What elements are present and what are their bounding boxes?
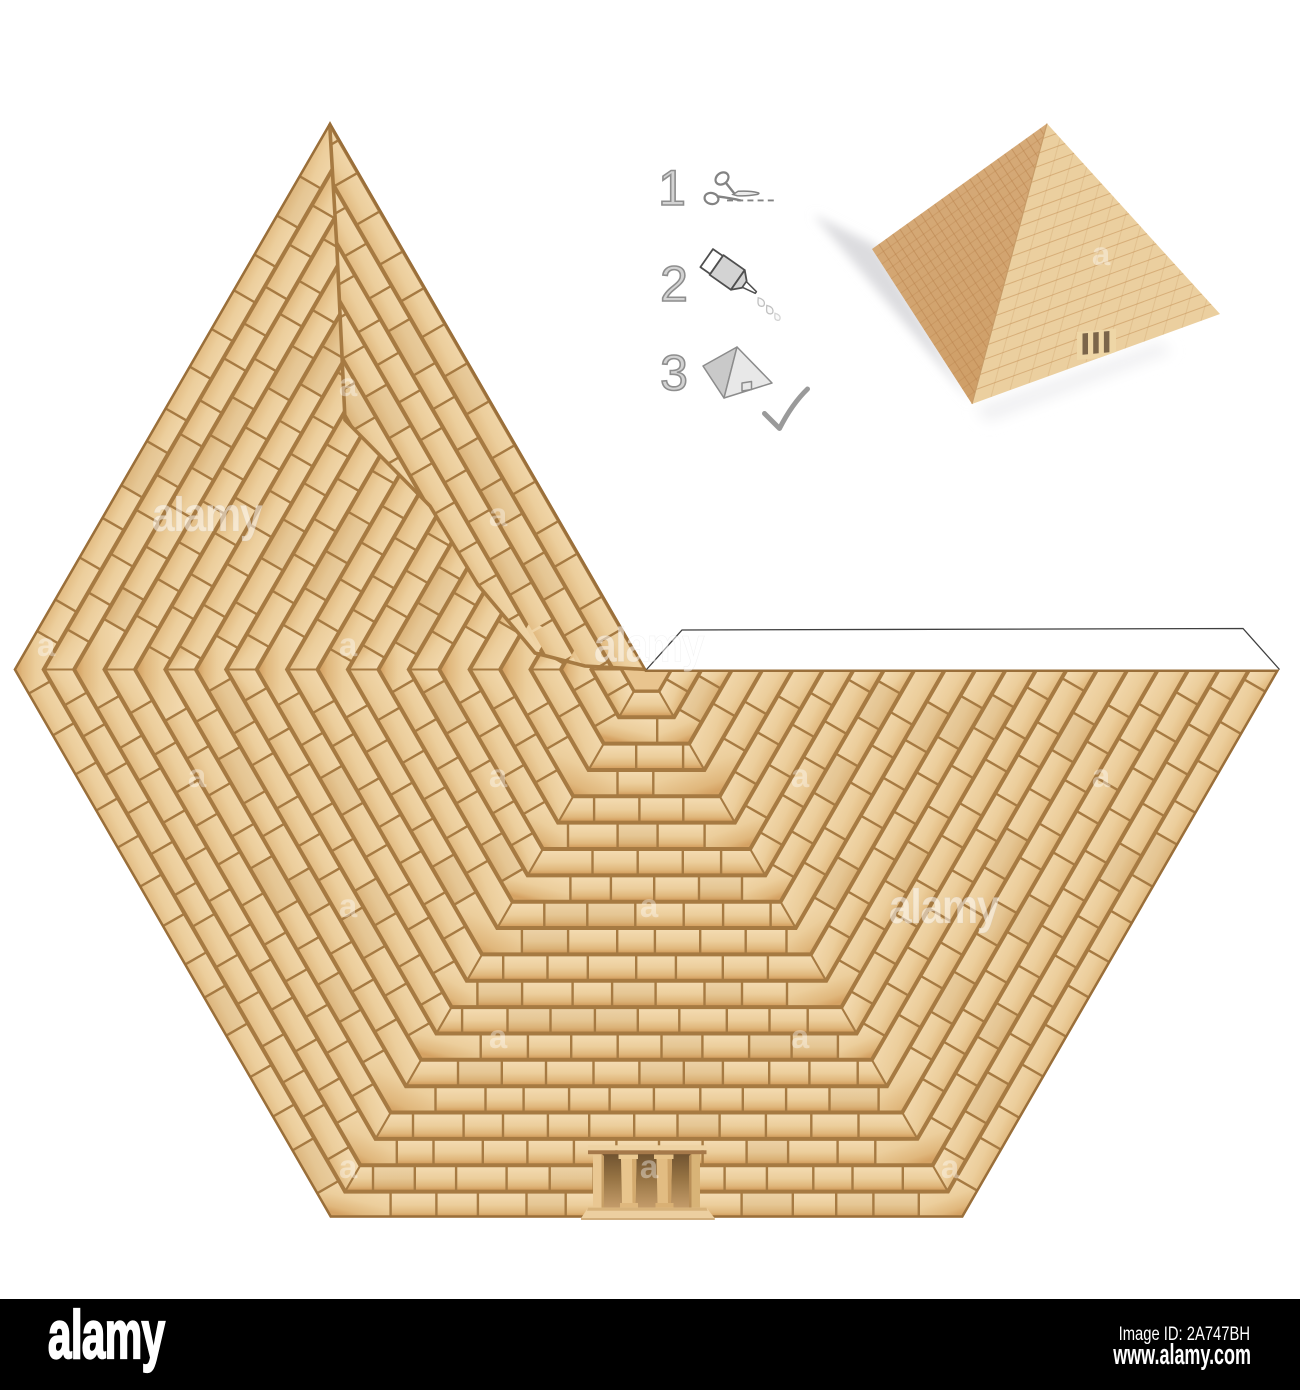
svg-text:a: a [339,1148,358,1185]
svg-text:a: a [1092,235,1111,272]
svg-text:a: a [188,757,207,794]
svg-text:alamy: alamy [152,489,263,542]
svg-text:2: 2 [660,256,688,312]
svg-text:a: a [1092,757,1111,794]
svg-text:3: 3 [660,345,688,401]
svg-text:www.alamy.com: www.alamy.com [1112,1339,1251,1371]
svg-text:a: a [188,1018,207,1055]
svg-text:a: a [339,366,358,403]
svg-text:a: a [37,626,56,663]
svg-text:a: a [791,1018,810,1055]
svg-text:a: a [640,887,659,924]
svg-text:a: a [489,757,508,794]
svg-text:alamy: alamy [48,1297,165,1373]
svg-text:a: a [339,626,358,663]
svg-text:a: a [941,1148,960,1185]
svg-text:a: a [489,496,508,533]
svg-text:a: a [339,887,358,924]
svg-text:a: a [489,1018,508,1055]
svg-text:a: a [791,757,810,794]
svg-text:a: a [640,1148,659,1185]
svg-text:alamy: alamy [594,619,705,672]
svg-text:a: a [188,235,207,272]
svg-text:1: 1 [658,160,686,216]
svg-text:alamy: alamy [889,881,1000,934]
